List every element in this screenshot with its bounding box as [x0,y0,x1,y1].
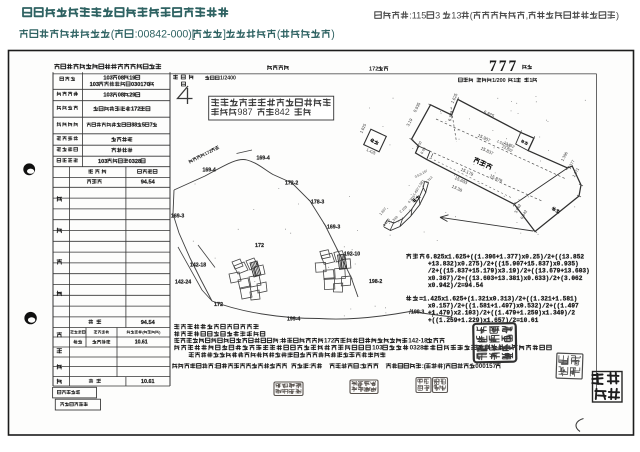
svg-text:): ) [616,10,619,20]
svg-text:172-2: 172-2 [285,181,298,187]
svg-text:/2+((15.837+15.179)x3.19)/2+((: /2+((15.837+15.179)x3.19)/2+((13.679+13.… [428,268,590,275]
svg-text:987: 987 [237,107,252,117]
svg-text:10.61: 10.61 [141,379,155,385]
svg-text:1/200: 1/200 [492,78,506,84]
svg-text:=1.425x1.625+(1.321x0.313)/2+(: =1.425x1.625+(1.321x0.313)/2+((1.321+1.5… [419,296,577,303]
svg-text:94.54: 94.54 [141,320,156,326]
svg-text:199-4: 199-4 [287,317,300,323]
svg-text:08: 08 [118,75,124,81]
svg-text:,: , [526,10,529,20]
svg-text::00842-000)[: :00842-000)[ [135,29,195,41]
svg-text:0328: 0328 [410,345,425,352]
svg-text:103: 103 [103,75,112,81]
svg-text:178-3: 178-3 [311,200,324,206]
svg-text:]: ] [223,29,226,41]
svg-text:103: 103 [103,93,112,99]
svg-text:777: 777 [489,58,518,75]
svg-text:): ) [331,29,335,41]
svg-text:199-3: 199-3 [411,310,424,316]
svg-text:169-4: 169-4 [257,156,270,162]
svg-text:172: 172 [369,67,378,73]
svg-text:192-10: 192-10 [344,252,360,258]
svg-text:1: 1 [529,78,532,84]
svg-text:142-18: 142-18 [408,338,428,345]
svg-text:030170: 030170 [131,82,150,88]
svg-text:x0.942)/2=94.54: x0.942)/2=94.54 [428,282,483,289]
svg-text:172: 172 [131,107,140,113]
svg-text:169-4: 169-4 [203,168,216,174]
svg-text:7: 7 [150,123,153,129]
svg-text:103: 103 [98,159,107,165]
svg-text::: : [359,363,361,370]
svg-text:x0.367)/2+((13.603+13.381)x0.6: x0.367)/2+((13.603+13.381)x0.633)/2+(3.0… [428,275,583,282]
svg-text:169-3: 169-3 [171,214,184,220]
svg-text:6.825x1.625+((1.396+1.377)x0.2: 6.825x1.625+((1.396+1.377)x0.25)/2+((13.… [426,254,584,261]
svg-text:000157: 000157 [475,363,496,370]
svg-text:842: 842 [275,107,290,117]
svg-text:29: 29 [129,93,135,99]
svg-text:1: 1 [513,78,516,84]
svg-text:(: ( [111,29,115,41]
svg-text:+13.832)x0.275)/2+((15.907+15.: +13.832)x0.275)/2+((15.907+15.837)x0.935… [428,261,579,268]
svg-text:142-18: 142-18 [190,263,206,269]
svg-text:(: ( [470,10,473,20]
svg-text:19: 19 [129,75,135,81]
svg-text:172: 172 [324,338,335,345]
svg-text:): ) [443,363,445,370]
svg-text:198-2: 198-2 [369,279,382,285]
svg-text:13: 13 [451,10,461,20]
svg-text:(: ( [277,29,281,41]
svg-text:10.61: 10.61 [135,340,148,346]
svg-text:142-24: 142-24 [175,280,191,286]
svg-text:3: 3 [435,10,440,20]
svg-text:94.54: 94.54 [141,180,156,186]
svg-text:0328: 0328 [129,159,141,165]
svg-text::115: :115 [409,10,426,20]
svg-text:x0.157)/2+((1.581+1.497)x0.532: x0.157)/2+((1.581+1.497)x0.532)/2+((1.49… [428,303,579,310]
svg-text:+1.479)x2.103)/2+((1.479+1.259: +1.479)x2.103)/2+((1.479+1.259)x1.349)/2 [428,310,575,317]
svg-text:88: 88 [131,123,137,129]
svg-text:1/2400: 1/2400 [220,76,236,82]
svg-text:103: 103 [90,82,99,88]
svg-text:08: 08 [118,93,124,99]
svg-text:172: 172 [214,302,223,308]
svg-text:169-3: 169-3 [327,225,340,231]
svg-text:5: 5 [142,123,145,129]
svg-text:103: 103 [372,345,383,352]
svg-text:172: 172 [255,243,264,249]
